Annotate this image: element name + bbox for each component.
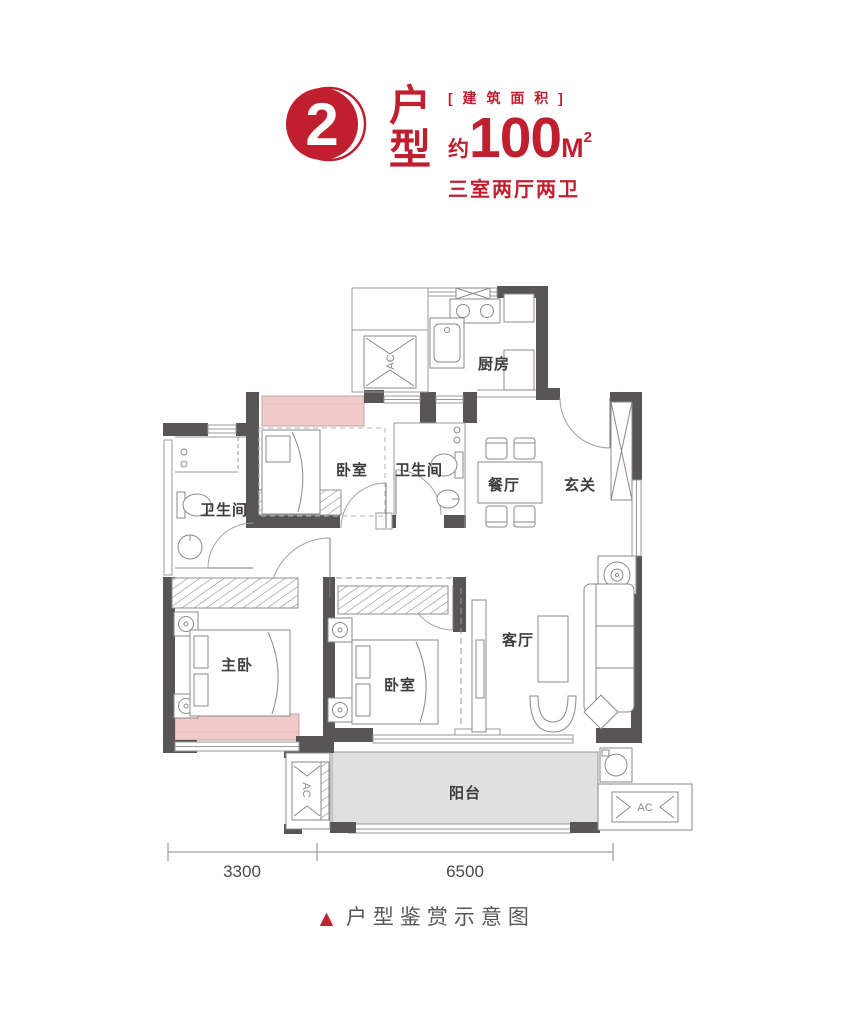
bedroom-south-furniture — [328, 618, 438, 724]
label-master-bedroom: 主卧 — [221, 656, 253, 674]
kitchen-fixtures — [430, 288, 534, 390]
label-bathroom-en-suite: 卫生间 — [395, 461, 443, 479]
label-bathroom-main: 卫生间 — [200, 501, 248, 519]
area-line: 约 100 M 2 — [448, 110, 638, 167]
label-living: 客厅 — [501, 631, 534, 649]
shoe-cabinet — [611, 402, 632, 500]
label-dining: 餐厅 — [488, 476, 520, 494]
dim-right: 6500 — [446, 862, 484, 881]
unit-title-char-1: 户 — [386, 84, 434, 128]
triangle-marker-icon: ▲ — [315, 905, 338, 931]
area-unit: M — [561, 135, 584, 167]
label-ac-balcony-right: AC — [637, 802, 652, 814]
area-approx: 约 — [448, 139, 469, 167]
label-ac-top: AC — [385, 354, 397, 369]
area-unit-exponent: 2 — [584, 130, 592, 167]
floorplan-page: 厨房 卧室 卫生间 卫生间 餐厅 玄关 主卧 卧室 客厅 阳台 AC AC AC… — [0, 0, 850, 1010]
dimension-lines — [168, 843, 613, 861]
badge-number: 2 — [305, 91, 338, 158]
header-area-info: [ 建 筑 面 积 ] 约 100 M 2 三室两厅两卫 — [448, 88, 638, 202]
label-bedroom-south: 卧室 — [384, 676, 416, 694]
layout-summary: 三室两厅两卫 — [448, 173, 638, 202]
unit-number-badge: 2 — [282, 82, 372, 172]
label-bedroom-top: 卧室 — [336, 461, 368, 479]
label-kitchen: 厨房 — [478, 355, 510, 373]
footer-caption: ▲户型鉴赏示意图 — [0, 901, 850, 932]
area-value: 100 — [469, 110, 561, 167]
label-foyer: 玄关 — [564, 476, 596, 494]
building-area-label: [ 建 筑 面 积 ] — [448, 88, 638, 108]
unit-title-char-2: 型 — [386, 128, 434, 172]
unit-type-title: 户 型 — [386, 84, 434, 172]
label-ac-balcony-left: AC — [300, 782, 312, 797]
living-room-furniture — [472, 556, 636, 732]
label-balcony: 阳台 — [449, 784, 481, 802]
dim-left: 3300 — [223, 862, 261, 881]
caption-text: 户型鉴赏示意图 — [346, 906, 535, 929]
dimension-labels: 3300 6500 — [223, 862, 484, 881]
